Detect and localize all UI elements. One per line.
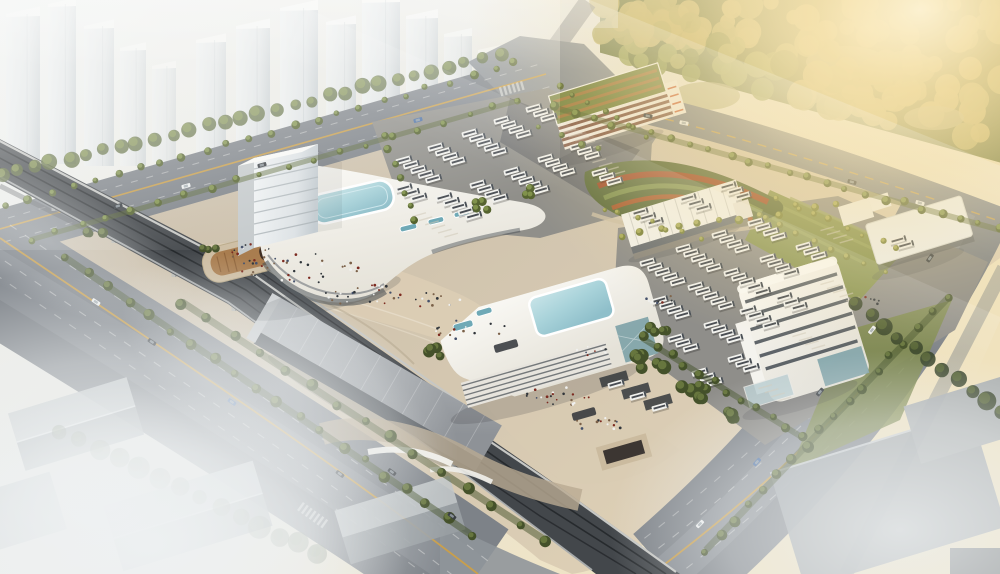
- person-dot: [393, 297, 396, 300]
- person-dot: [612, 427, 615, 430]
- person-dot: [356, 270, 358, 272]
- person-dot: [321, 260, 323, 262]
- tree-highlight: [654, 343, 659, 348]
- person-dot: [503, 325, 505, 327]
- person-dot: [490, 323, 492, 325]
- person-dot: [565, 386, 568, 389]
- person-dot: [588, 396, 590, 398]
- tree-highlight: [464, 483, 471, 490]
- person-dot: [579, 423, 581, 425]
- person-dot: [320, 273, 322, 275]
- person-dot: [433, 293, 435, 295]
- person-dot: [371, 284, 373, 286]
- person-dot: [389, 291, 391, 293]
- tree-highlight: [640, 332, 646, 338]
- person-dot: [600, 348, 602, 350]
- person-dot: [449, 334, 451, 336]
- person-dot: [616, 421, 618, 423]
- tree-highlight: [646, 322, 653, 329]
- person-dot: [536, 397, 538, 399]
- person-dot: [585, 352, 587, 354]
- person-dot: [594, 350, 596, 352]
- person-dot: [349, 268, 352, 271]
- person-dot: [550, 395, 552, 397]
- person-dot: [349, 262, 352, 265]
- person-dot: [381, 286, 384, 289]
- transit-hub-aerial-rendering: [0, 0, 1000, 574]
- person-dot: [448, 304, 450, 306]
- person-dot: [613, 424, 615, 426]
- person-dot: [556, 399, 558, 401]
- tree-highlight: [634, 354, 641, 361]
- person-dot: [347, 296, 349, 298]
- person-dot: [236, 253, 239, 256]
- person-dot: [604, 417, 606, 419]
- tree-highlight: [658, 361, 667, 370]
- person-dot: [357, 287, 359, 289]
- person-dot: [540, 396, 542, 398]
- person-dot: [526, 393, 528, 395]
- tree-highlight: [426, 344, 433, 351]
- person-dot: [399, 294, 402, 297]
- tree-highlight: [651, 328, 657, 334]
- person-dot: [336, 295, 338, 297]
- person-dot: [440, 332, 442, 334]
- person-dot: [570, 399, 572, 401]
- person-dot: [398, 297, 400, 299]
- person-dot: [534, 388, 537, 391]
- person-dot: [425, 292, 427, 294]
- person-dot: [576, 349, 578, 351]
- person-dot: [315, 253, 317, 255]
- person-dot: [357, 267, 360, 270]
- person-dot: [526, 395, 528, 397]
- person-dot: [604, 348, 606, 350]
- person-dot: [427, 300, 430, 303]
- person-dot: [340, 292, 342, 294]
- tree-highlight: [469, 532, 474, 537]
- person-dot: [385, 285, 388, 288]
- tree-highlight: [517, 522, 522, 527]
- person-dot: [619, 427, 622, 430]
- person-dot: [596, 421, 599, 424]
- person-dot: [373, 284, 376, 287]
- person-dot: [308, 277, 310, 279]
- person-dot: [378, 284, 380, 286]
- person-dot: [231, 251, 233, 253]
- person-dot: [584, 397, 586, 399]
- person-dot: [384, 302, 386, 304]
- person-dot: [552, 403, 554, 405]
- person-dot: [273, 263, 275, 265]
- person-dot: [320, 263, 323, 266]
- person-dot: [415, 299, 417, 301]
- person-dot: [498, 333, 500, 335]
- person-dot: [472, 335, 474, 337]
- person-dot: [436, 327, 439, 330]
- person-dot: [455, 320, 457, 322]
- person-dot: [419, 305, 421, 307]
- person-dot: [435, 330, 437, 332]
- tree-highlight: [695, 381, 701, 387]
- person-dot: [378, 289, 380, 291]
- person-dot: [587, 346, 589, 348]
- person-dot: [335, 291, 337, 293]
- person-dot: [300, 261, 302, 263]
- person-dot: [552, 393, 554, 395]
- person-dot: [440, 295, 442, 297]
- person-dot: [318, 281, 320, 283]
- person-dot: [282, 260, 285, 263]
- tree-highlight: [487, 501, 493, 507]
- person-dot: [346, 301, 348, 303]
- tree-highlight: [679, 362, 684, 367]
- person-dot: [436, 297, 439, 300]
- person-dot: [572, 403, 574, 405]
- person-dot: [376, 300, 378, 302]
- person-dot: [431, 304, 434, 307]
- person-dot: [607, 423, 609, 425]
- person-dot: [546, 395, 549, 398]
- tree-highlight: [669, 350, 675, 356]
- person-dot: [581, 427, 584, 430]
- person-dot: [353, 291, 356, 294]
- tree-highlight: [712, 377, 717, 382]
- person-dot: [322, 275, 324, 277]
- person-dot: [462, 330, 465, 333]
- person-dot: [454, 337, 457, 340]
- person-dot: [295, 253, 298, 256]
- person-dot: [453, 328, 456, 331]
- person-dot: [572, 393, 574, 395]
- person-dot: [547, 402, 549, 404]
- person-dot: [274, 258, 276, 260]
- tree-highlight: [659, 327, 664, 332]
- person-dot: [587, 354, 589, 356]
- person-dot: [562, 393, 565, 396]
- person-dot: [293, 270, 295, 272]
- person-dot: [342, 266, 344, 268]
- person-dot: [421, 298, 423, 300]
- person-dot: [286, 262, 288, 264]
- person-dot: [263, 256, 265, 258]
- person-dot: [373, 294, 375, 296]
- person-dot: [600, 420, 602, 422]
- person-dot: [608, 419, 610, 421]
- tree-highlight: [540, 536, 547, 543]
- rendering-canvas: [0, 0, 1000, 574]
- tree-highlight: [695, 370, 701, 376]
- person-dot: [473, 332, 476, 335]
- person-dot: [459, 298, 462, 301]
- person-dot: [344, 265, 346, 267]
- person-dot: [576, 420, 578, 422]
- person-dot: [307, 264, 310, 267]
- person-dot: [369, 301, 371, 303]
- tree-highlight: [676, 381, 684, 389]
- person-dot: [465, 326, 467, 328]
- person-dot: [604, 351, 606, 353]
